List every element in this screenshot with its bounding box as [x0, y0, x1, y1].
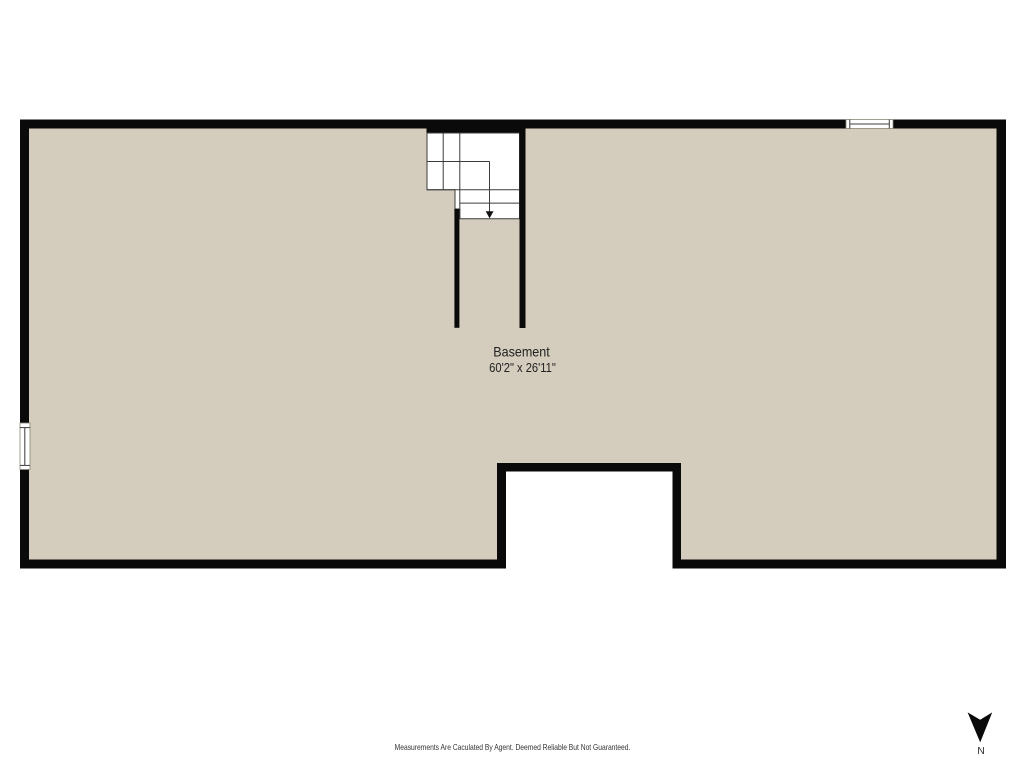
svg-text:Basement: Basement	[493, 344, 550, 360]
svg-text:60'2" x 26'11": 60'2" x 26'11"	[489, 360, 556, 375]
svg-text:N: N	[977, 745, 985, 757]
svg-text:Measurements Are Caculated By: Measurements Are Caculated By Agent. Dee…	[395, 742, 631, 752]
